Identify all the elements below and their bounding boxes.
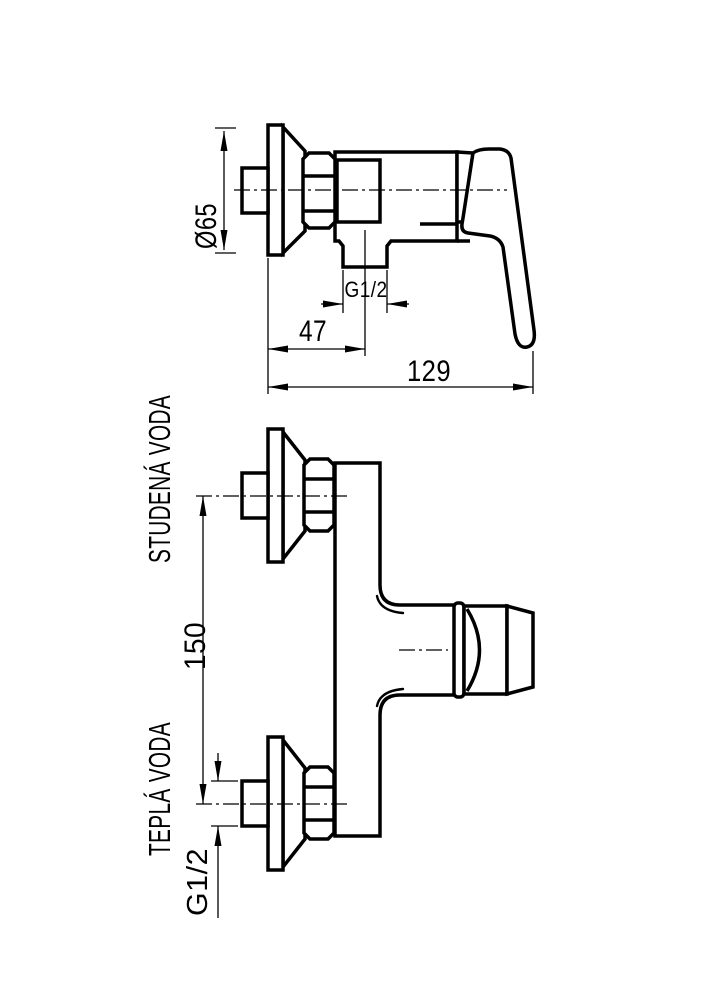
outlet-offset-dimension-label: 47 — [299, 315, 327, 348]
handle-grip-end — [507, 606, 533, 694]
cold-inlet — [196, 429, 350, 562]
hot-water-label: TEPLÁ VODA — [142, 722, 177, 856]
mixer-body-outline — [335, 152, 457, 267]
side-view: Ø65 G1/2 47 129 — [190, 125, 534, 394]
inlet-spacing-dimension-label: 150 — [179, 622, 212, 670]
cold-water-label: STUDENÁ VODA — [142, 395, 177, 563]
inlet-thread-dimension-label: G1/2 — [182, 848, 214, 916]
handle-end-collar — [464, 606, 507, 694]
diameter-dimension-label: Ø65 — [190, 203, 223, 249]
front-view: 150 G1/2 STUDENÁ VODA TEPLÁ VODA — [142, 395, 533, 918]
hex-nut — [304, 767, 334, 839]
hex-nut — [304, 459, 334, 531]
overall-depth-dimension-label: 129 — [407, 355, 451, 388]
hot-inlet — [196, 737, 350, 870]
technical-drawing-page: Ø65 G1/2 47 129 — [0, 0, 707, 1000]
technical-drawing: Ø65 G1/2 47 129 — [0, 0, 707, 1000]
outlet-thread-dimension-label: G1/2 — [345, 277, 388, 302]
handle-lever — [462, 149, 534, 347]
